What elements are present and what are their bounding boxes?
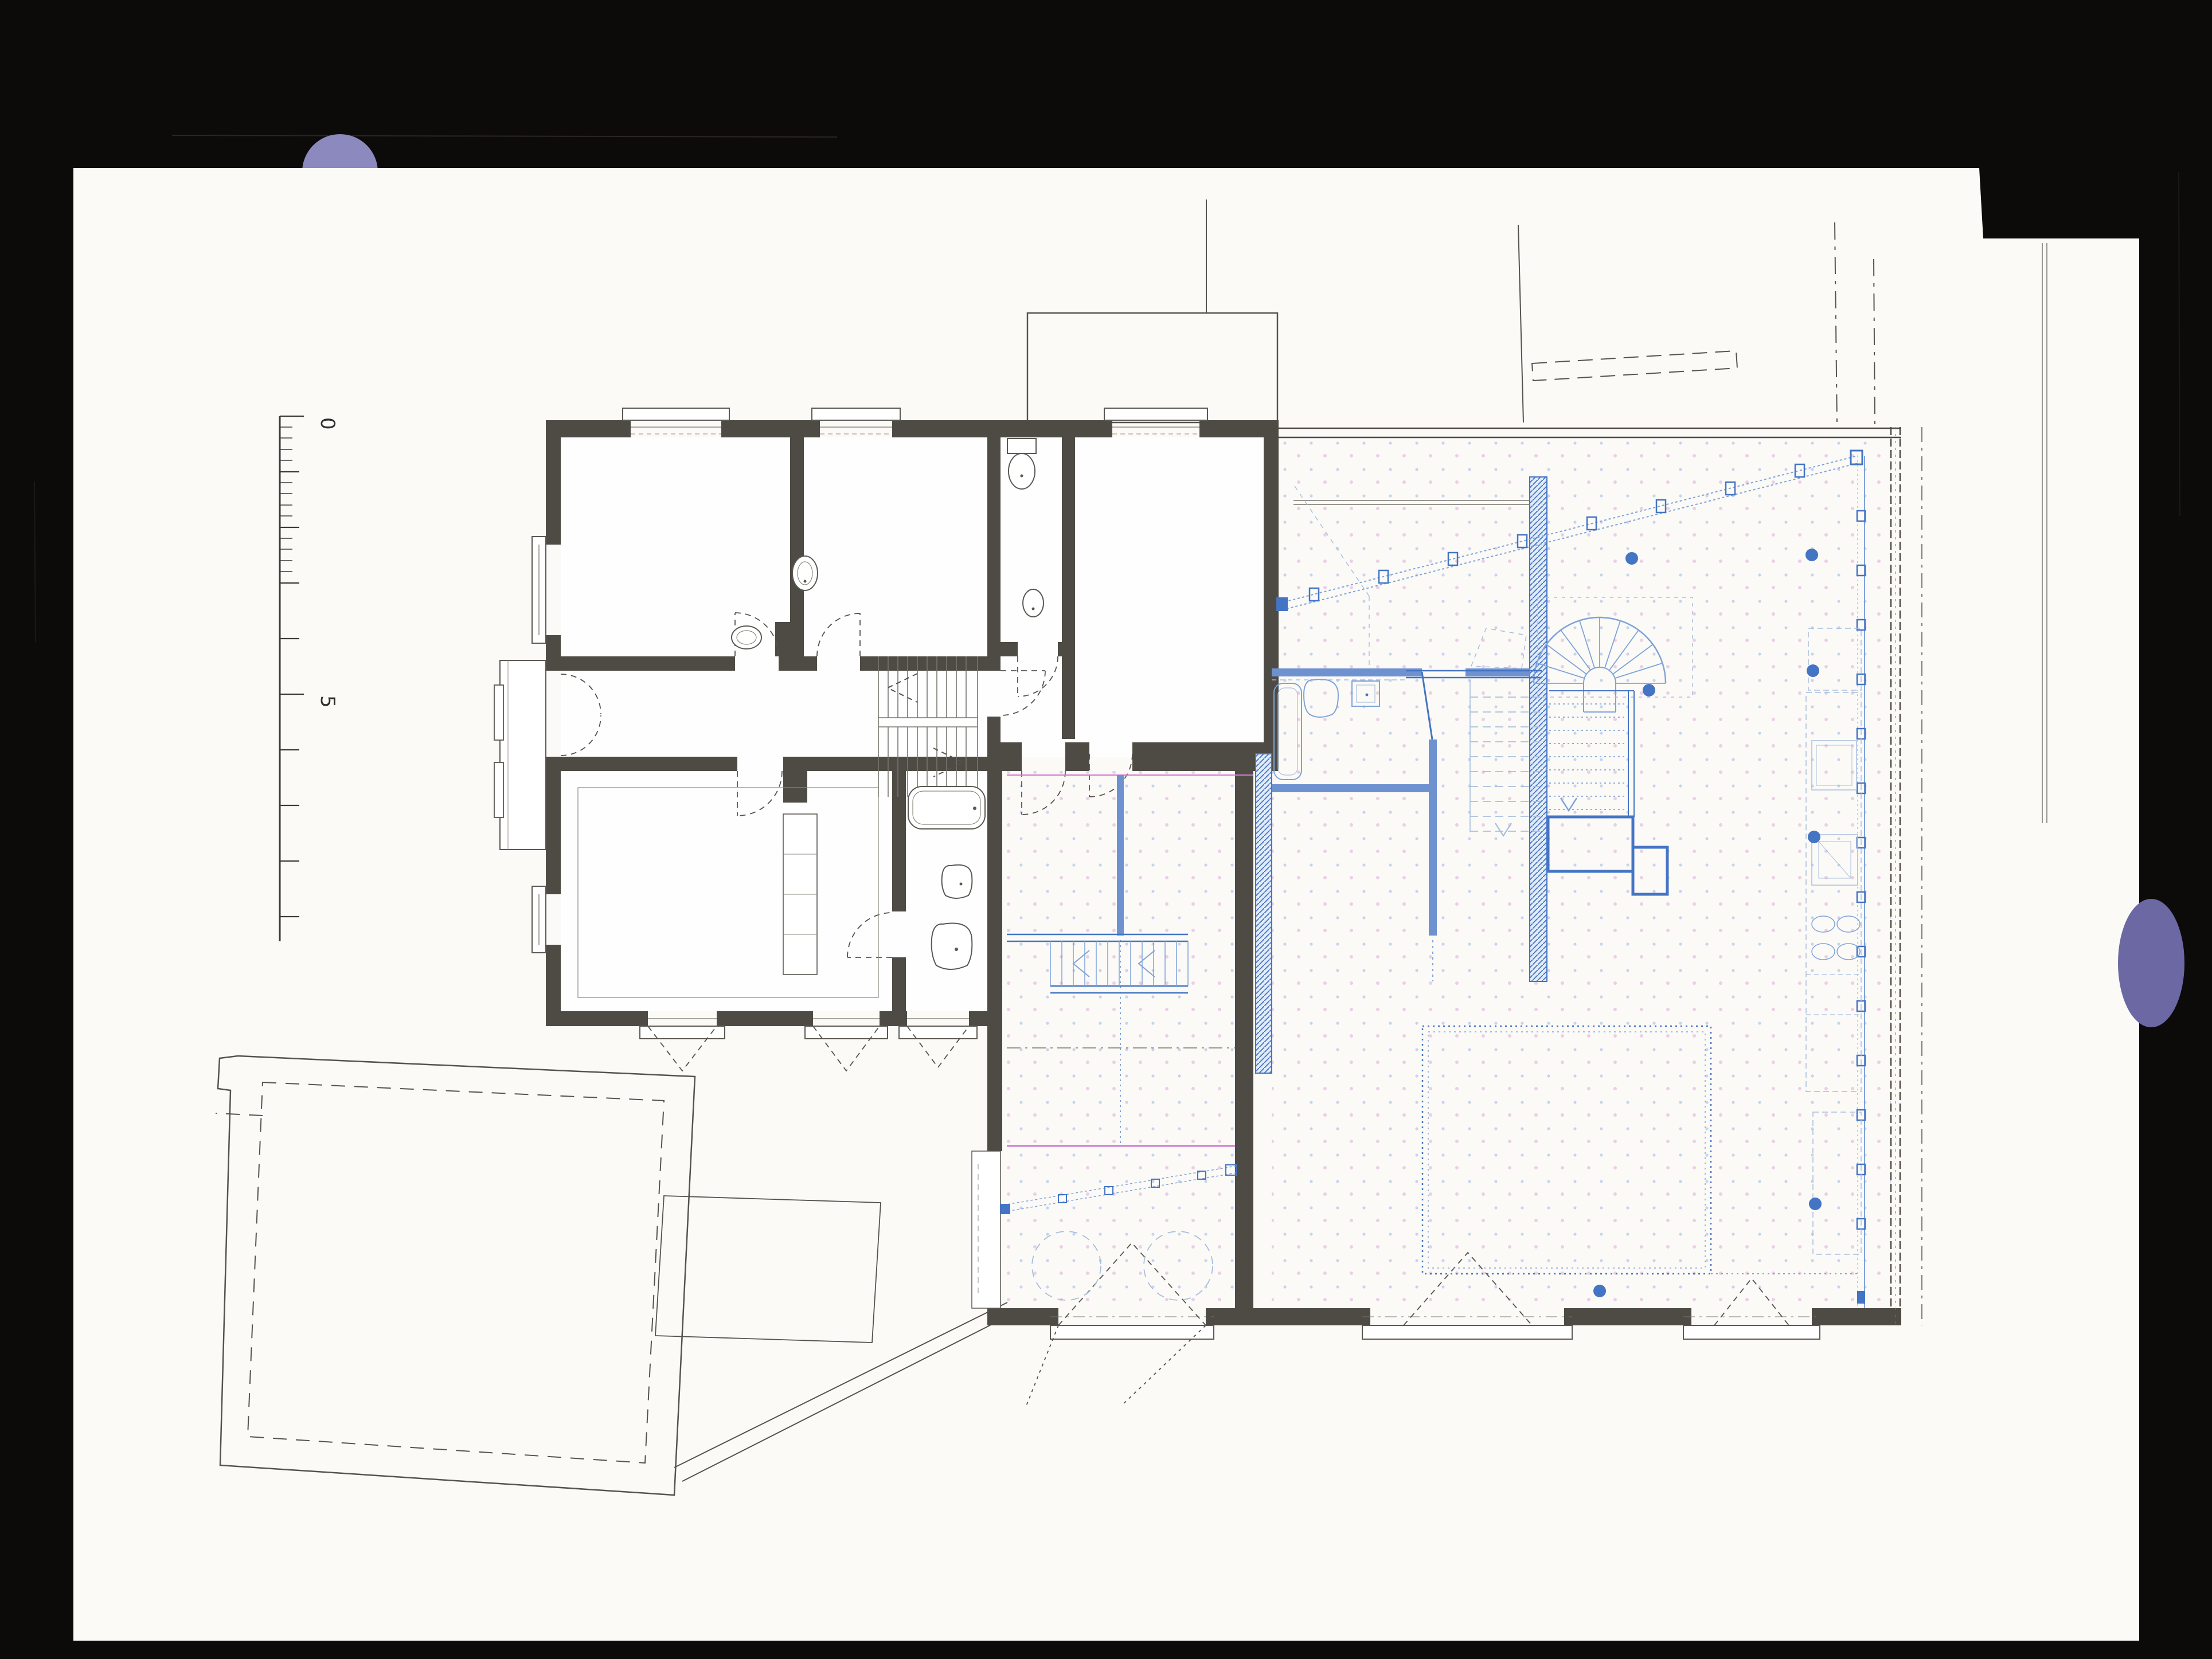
sink-r1 [732, 626, 761, 649]
blue-wall-middle [1117, 775, 1124, 936]
window-left-r1 [532, 537, 546, 643]
bath-wall-top-a [1272, 668, 1422, 676]
wall-middle-left [987, 771, 1002, 1151]
wall-hall-left [987, 437, 1001, 771]
sink-wc [1023, 589, 1044, 617]
scale-label-five: 5 [316, 695, 339, 708]
new-wall-core [1530, 477, 1547, 981]
purple-smudge-right [2118, 899, 2184, 1027]
column-dot [1593, 1285, 1606, 1297]
toilet-wc [1007, 439, 1036, 489]
bath-wall-top-b [1465, 668, 1530, 676]
bath-wall-bottom [1272, 784, 1429, 792]
bidet-r6 [942, 865, 972, 898]
facade-corner-post [1857, 1291, 1865, 1304]
new-floor-main [1272, 439, 1891, 1308]
chimney-stub-upper [775, 622, 804, 656]
sink-new-drain [1366, 694, 1369, 697]
wall-wc-r4 [1062, 437, 1075, 739]
wall-middle-right [1235, 771, 1253, 1308]
new-wall-party [1256, 754, 1272, 1073]
existing-floor-upper [561, 437, 1264, 757]
bay-window-porch [494, 660, 546, 850]
lower-porch-strip [972, 1151, 1001, 1308]
glazing-end-post-left [1276, 597, 1288, 611]
washbasin-r6 [932, 923, 972, 969]
scanned-floor-plan: 0 5 [0, 0, 2212, 1659]
wall-r5-r6 [892, 771, 906, 1026]
column-dot [1625, 552, 1638, 565]
new-wall-thin-vertical [1429, 739, 1437, 936]
chimney-stub-lower [783, 771, 807, 803]
bay-window-glass-a [494, 685, 503, 740]
sink-r2 [792, 556, 818, 590]
column-dot [1808, 831, 1820, 843]
glazing-post-left [1000, 1204, 1010, 1214]
window-left-r5 [532, 886, 546, 953]
column-dot-spiral [1643, 684, 1655, 697]
bathtub-r6 [908, 787, 985, 829]
scale-label-zero: 0 [316, 417, 339, 430]
floor-plan-canvas: 0 5 [0, 0, 2212, 1659]
column-dot [1807, 664, 1819, 677]
column-dot [1805, 549, 1818, 561]
column-dot [1809, 1198, 1822, 1210]
wall-r4-right [1264, 420, 1279, 742]
bay-window-glass-b [494, 762, 503, 817]
